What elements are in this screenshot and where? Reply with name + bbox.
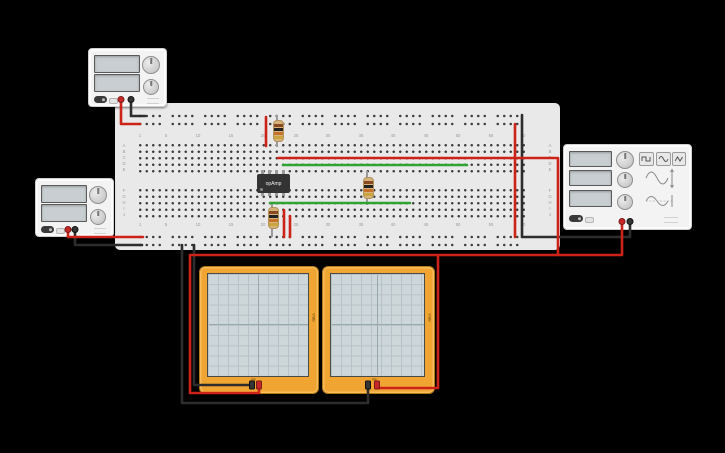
column-number: 35 [359, 133, 364, 138]
power-supply-1-logo [147, 98, 159, 104]
column-number: 40 [391, 133, 396, 138]
power-supply-2-voltage-display [41, 185, 87, 203]
function-generator-amplitude-knob[interactable] [617, 172, 633, 188]
column-number: 1 [139, 133, 141, 138]
power-supply-2-current-knob[interactable] [90, 209, 106, 225]
column-number: 45 [424, 133, 429, 138]
power-supply-1-current-knob[interactable] [143, 79, 159, 95]
column-number: 25 [294, 133, 299, 138]
sine-wave-icon[interactable] [656, 152, 671, 166]
column-number: 15 [229, 133, 234, 138]
power-supply-1-on-indicator [109, 98, 118, 104]
power-supply-1-voltage-display [94, 55, 140, 73]
column-number: 30 [326, 133, 331, 138]
circuit-canvas: ABCDE FGHIJ ABCDE FGHIJ 1 5 10 15 20 25 … [0, 0, 725, 453]
resistor-band [274, 132, 283, 135]
breadboard-rows-a-e[interactable] [137, 142, 527, 175]
row-letters-right-bottom: FGHIJ [547, 189, 554, 217]
resistor-band [274, 136, 283, 139]
function-generator-logo [664, 217, 678, 223]
function-generator[interactable] [563, 144, 692, 230]
resistor-band [274, 128, 283, 131]
column-number: 20 [261, 133, 266, 138]
oscilloscope-left-side-label: V/div [311, 313, 316, 321]
column-number: 5 [165, 133, 167, 138]
column-number: 5 [165, 222, 167, 227]
triangle-wave-icon[interactable] [672, 152, 686, 166]
column-number: 30 [326, 222, 331, 227]
column-number: 35 [359, 222, 364, 227]
offset-diagram-icon [644, 192, 678, 211]
resistor-band [364, 193, 373, 196]
power-supply-2-on-indicator [56, 228, 65, 234]
breadboard-top-power-rails[interactable] [137, 112, 527, 128]
function-generator-offset-display [569, 190, 612, 207]
power-supply-1[interactable] [88, 48, 167, 107]
oscilloscope-left-bottom-label: ms [251, 378, 256, 382]
oscilloscope-right-side-label: V/div [427, 313, 432, 321]
opamp-label: opAmp [266, 181, 282, 187]
resistor-band [269, 219, 278, 222]
power-supply-2[interactable] [35, 178, 114, 237]
column-number: 10 [196, 133, 201, 138]
power-supply-1-power-button[interactable] [94, 96, 107, 103]
opamp-chip[interactable]: opAmp [257, 174, 290, 193]
function-generator-amplitude-display [569, 170, 612, 186]
power-supply-2-power-button[interactable] [41, 226, 54, 233]
column-number: 20 [261, 222, 266, 227]
power-supply-2-current-display [41, 204, 87, 222]
function-generator-offset-knob[interactable] [617, 194, 633, 210]
oscilloscope-left-center-vline [258, 275, 259, 375]
column-number: 55 [489, 222, 494, 227]
resistor-band [364, 181, 373, 184]
function-generator-power-button[interactable] [569, 215, 583, 222]
column-number: 60 [521, 133, 526, 138]
square-wave-icon[interactable] [639, 152, 654, 166]
oscilloscope-right-bottom-label: ms [372, 378, 377, 382]
oscilloscope-left-center-hline [209, 324, 308, 325]
resistor-band [364, 185, 373, 188]
oscilloscope-right-center-vline [377, 275, 378, 375]
column-number: 50 [456, 133, 461, 138]
breadboard-rows-f-j[interactable] [137, 187, 527, 220]
column-number: 10 [196, 222, 201, 227]
power-supply-2-logo [94, 228, 106, 234]
column-number: 45 [424, 222, 429, 227]
resistor-2[interactable] [363, 177, 374, 199]
amplitude-diagram-icon [644, 168, 678, 189]
opamp-pin1-dot [260, 188, 263, 191]
resistor-3[interactable] [268, 207, 279, 229]
power-supply-2-voltage-knob[interactable] [89, 186, 107, 204]
column-number: 40 [391, 222, 396, 227]
resistor-1[interactable] [273, 120, 284, 142]
row-letters-left-top: ABCDE [121, 144, 128, 172]
function-generator-on-indicator [585, 217, 594, 223]
function-generator-frequency-knob[interactable] [616, 151, 634, 169]
oscilloscope-left[interactable]: V/div ms [199, 266, 319, 394]
power-supply-1-current-display [94, 74, 140, 92]
oscilloscope-right-center-hline [332, 324, 424, 325]
resistor-band [269, 223, 278, 226]
column-number: 25 [294, 222, 299, 227]
resistor-band [364, 189, 373, 192]
resistor-band [269, 211, 278, 214]
resistor-band [274, 124, 283, 127]
column-number: 55 [489, 133, 494, 138]
oscilloscope-right[interactable]: V/div ms [322, 266, 435, 394]
column-number: 60 [521, 222, 526, 227]
column-number: 15 [229, 222, 234, 227]
function-generator-frequency-display [569, 151, 612, 167]
resistor-band [269, 215, 278, 218]
row-letters-right-top: ABCDE [547, 144, 554, 172]
power-supply-1-voltage-knob[interactable] [142, 56, 160, 74]
column-number: 50 [456, 222, 461, 227]
breadboard-bottom-power-rails[interactable] [137, 233, 527, 249]
row-letters-left-bottom: FGHIJ [121, 189, 128, 217]
column-number: 1 [139, 222, 141, 227]
